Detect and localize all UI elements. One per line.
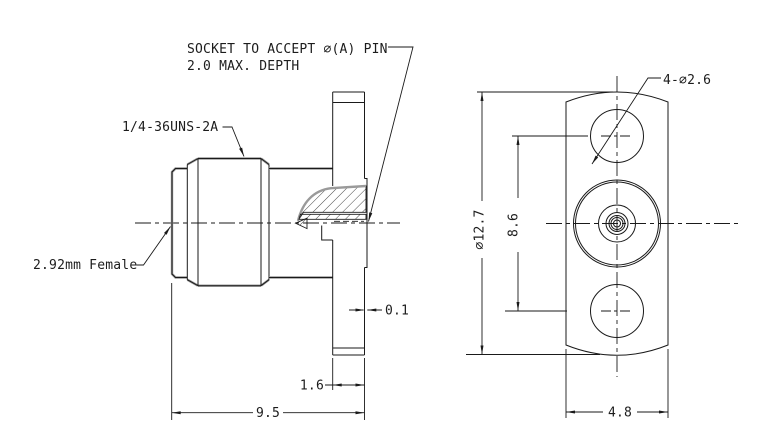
- dim-0-1-arrow-left: [356, 309, 365, 312]
- engineering-drawing-page: 9.5 1.6 0.1 ∅12.7 8.6 4.8 SOCKET TO: [0, 0, 760, 440]
- dim-boss-protrusion-text: 0.1: [385, 304, 409, 319]
- dim-flange-thickness-text: 1.6: [300, 379, 324, 394]
- socket-note-line1: SOCKET TO ACCEPT ∅(A) PIN: [187, 42, 388, 57]
- dim-8-6-arrow-bottom: [517, 302, 520, 311]
- dim-9-5-arrow-left: [172, 411, 181, 414]
- interface-arrow: [164, 227, 171, 235]
- dim-0-1-arrow-right: [367, 309, 376, 312]
- interface-label: 2.92mm Female: [33, 258, 137, 273]
- dim-4-8-arrow-right: [659, 411, 668, 414]
- dimension-0-1: 0.1: [349, 304, 409, 319]
- dimension-9-5: 9.5: [172, 283, 365, 421]
- thread-label: 1/4-36UNS-2A: [122, 120, 218, 135]
- dim-hole-spacing-text: 8.6: [507, 213, 522, 237]
- socket-note-line2: 2.0 MAX. DEPTH: [187, 59, 299, 74]
- dim-9-5-extension-lines: [172, 283, 365, 420]
- dim-flange-width-text: 4.8: [608, 406, 632, 421]
- dim-4-8-arrow-left: [566, 411, 575, 414]
- socket-note-leader: [369, 47, 414, 222]
- dim-8-6-arrow-top: [517, 136, 520, 145]
- flange-side-outline: [333, 92, 367, 355]
- body-step-line: [322, 226, 333, 241]
- mounting-holes-arrow: [592, 156, 598, 164]
- centerlines: [135, 76, 741, 377]
- dim-overall-length-text: 9.5: [256, 406, 280, 421]
- insulator-section-band: [299, 214, 366, 219]
- thread-leader: [223, 127, 245, 157]
- dimension-1-6: 1.6: [300, 358, 365, 394]
- dim-12-7-arrow-top: [481, 92, 484, 101]
- drawing-canvas: 9.5 1.6 0.1 ∅12.7 8.6 4.8 SOCKET TO: [0, 0, 760, 440]
- dim-9-5-arrow-right: [356, 411, 365, 414]
- coupling-nut-outline: [187, 159, 269, 286]
- dim-flange-diameter-text: ∅12.7: [473, 209, 488, 249]
- mounting-holes-leader: [592, 78, 661, 164]
- dim-1-6-arrow-left: [333, 384, 342, 387]
- coupling-nut-heavy-edges: [187, 159, 269, 286]
- drawing-notes: SOCKET TO ACCEPT ∅(A) PIN 2.0 MAX. DEPTH…: [33, 42, 711, 273]
- leader-lines: [137, 47, 662, 265]
- mounting-holes-label: 4-∅2.6: [663, 73, 711, 88]
- dim-12-7-arrow-bottom: [481, 346, 484, 355]
- thread-arrow: [239, 148, 244, 157]
- dim-1-6-arrow-right: [356, 384, 365, 387]
- socket-note-arrow: [369, 212, 373, 221]
